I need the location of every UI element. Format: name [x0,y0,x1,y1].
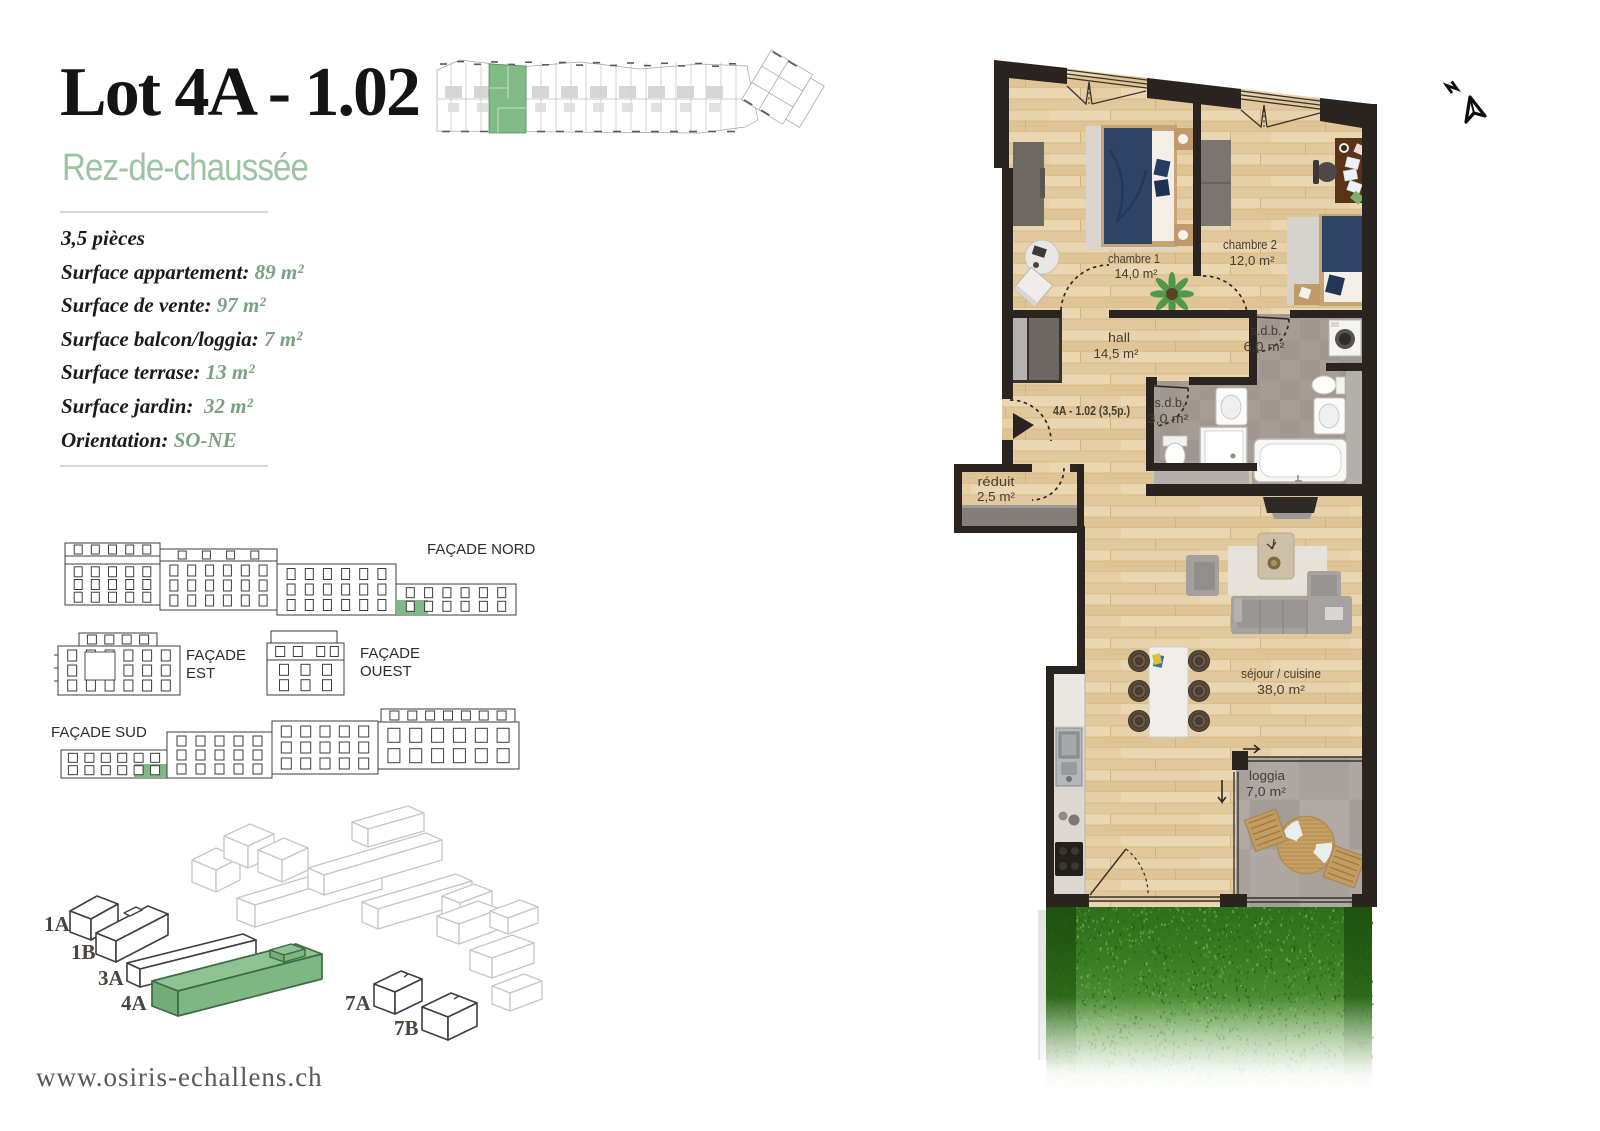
svg-text:2,5 m²: 2,5 m² [977,490,1015,504]
svg-text:FAÇADE SUD: FAÇADE SUD [51,724,147,741]
svg-text:12,0 m²: 12,0 m² [1230,253,1276,268]
svg-text:14,5 m²: 14,5 m² [1094,346,1140,361]
svg-text:réduit: réduit [978,475,1016,489]
svg-text:38,0 m²: 38,0 m² [1257,682,1306,697]
svg-text:séjour / cuisine: séjour / cuisine [1241,666,1321,681]
svg-text:hall: hall [1108,330,1130,345]
svg-text:chambre 2: chambre 2 [1223,237,1277,252]
svg-text:FAÇADE: FAÇADE [360,645,420,662]
svg-text:s.d.b.: s.d.b. [1155,396,1186,410]
svg-text:4A - 1.02 (3,5p.): 4A - 1.02 (3,5p.) [1053,403,1130,418]
svg-text:7B: 7B [394,1016,419,1040]
svg-text:7A: 7A [345,991,372,1015]
svg-text:FAÇADE: FAÇADE [186,647,246,664]
svg-text:EST: EST [186,665,215,682]
svg-text:1A: 1A [44,912,71,936]
svg-text:3A: 3A [98,966,125,990]
svg-text:7,0 m²: 7,0 m² [1246,784,1287,799]
svg-text:s.d.b.: s.d.b. [1251,324,1282,338]
svg-text:14,0 m²: 14,0 m² [1115,266,1159,281]
svg-text:3,0 m²: 3,0 m² [1148,412,1189,426]
svg-text:6,0 m²: 6,0 m² [1244,340,1285,354]
svg-text:FAÇADE NORD: FAÇADE NORD [427,541,536,558]
svg-text:4A: 4A [121,991,148,1015]
svg-text:chambre 1: chambre 1 [1108,251,1160,266]
svg-text:1B: 1B [71,940,96,964]
svg-text:loggia: loggia [1249,768,1286,783]
svg-text:OUEST: OUEST [360,663,412,680]
